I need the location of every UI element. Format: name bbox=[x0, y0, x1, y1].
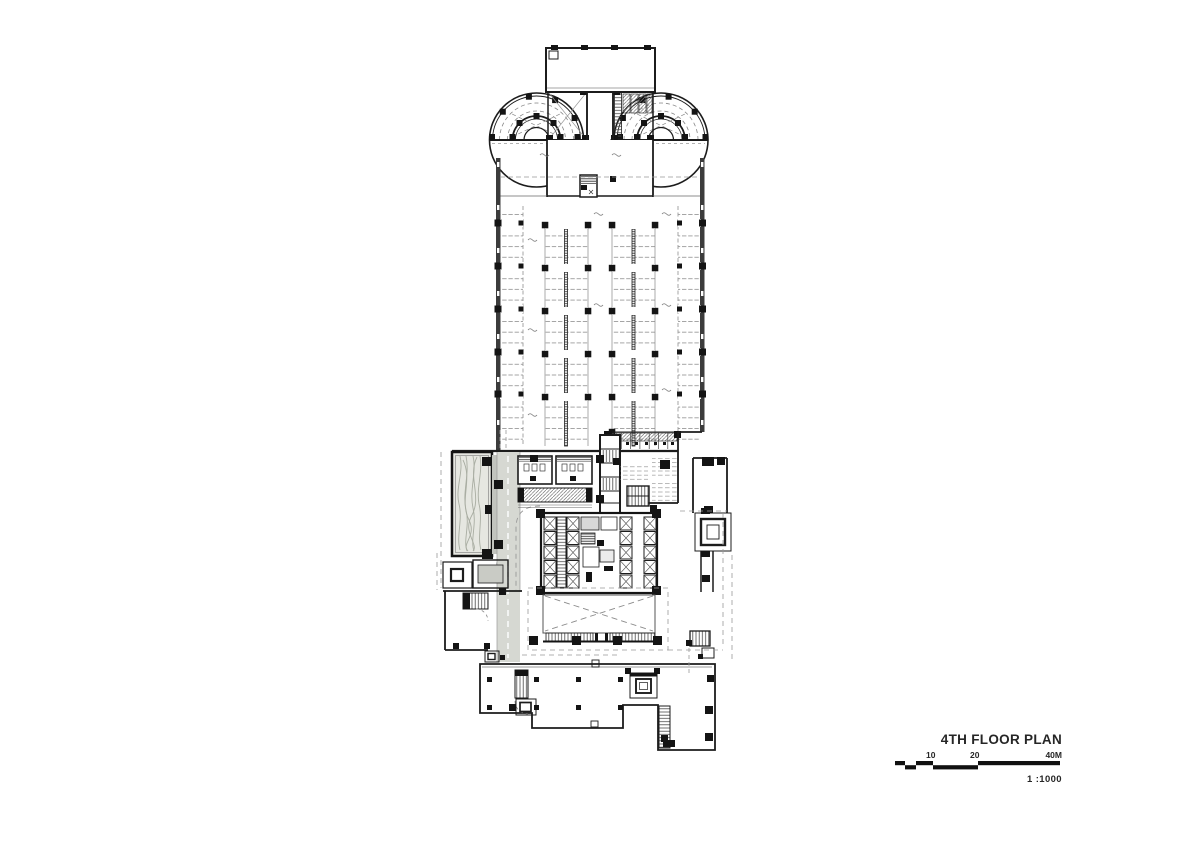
lower-floor-plate bbox=[480, 648, 715, 750]
atrium-void bbox=[528, 588, 668, 650]
parking-deck bbox=[495, 154, 707, 451]
parking-stalls bbox=[500, 206, 701, 446]
stair-core-west bbox=[463, 593, 488, 621]
scale-label-10: 10 bbox=[926, 750, 935, 760]
east-service-wing bbox=[686, 457, 731, 659]
skylight-east bbox=[695, 513, 731, 551]
scale-bar-labels: 10 20 40M bbox=[890, 750, 1062, 760]
escalator-band bbox=[518, 488, 592, 508]
scale-label-40m: 40M bbox=[1045, 750, 1062, 760]
drawing-title: 4TH FLOOR PLAN bbox=[890, 732, 1062, 747]
scale-ratio: 1 :1000 bbox=[890, 774, 1062, 785]
west-wall bbox=[496, 158, 501, 451]
floor-plan-sheet: 4TH FLOOR PLAN 10 20 40M 1 :1000 bbox=[0, 0, 1200, 849]
skylight-southwest bbox=[443, 562, 472, 588]
elevator-bank bbox=[536, 509, 661, 595]
roof-block bbox=[546, 45, 655, 92]
floor-plan-drawing bbox=[0, 0, 1200, 849]
scale-bar bbox=[890, 761, 1062, 771]
stair-lower bbox=[515, 670, 528, 714]
scale-label-20: 20 bbox=[970, 750, 979, 760]
title-block: 4TH FLOOR PLAN 10 20 40M 1 :1000 bbox=[890, 732, 1062, 785]
service-core bbox=[518, 435, 678, 515]
central-shaft bbox=[596, 435, 620, 515]
structural-columns bbox=[495, 220, 707, 436]
ramp-link-corridor bbox=[500, 92, 700, 197]
toilet-rooms bbox=[518, 455, 592, 484]
skylight-south bbox=[630, 673, 657, 698]
stair-core-east bbox=[627, 486, 649, 506]
